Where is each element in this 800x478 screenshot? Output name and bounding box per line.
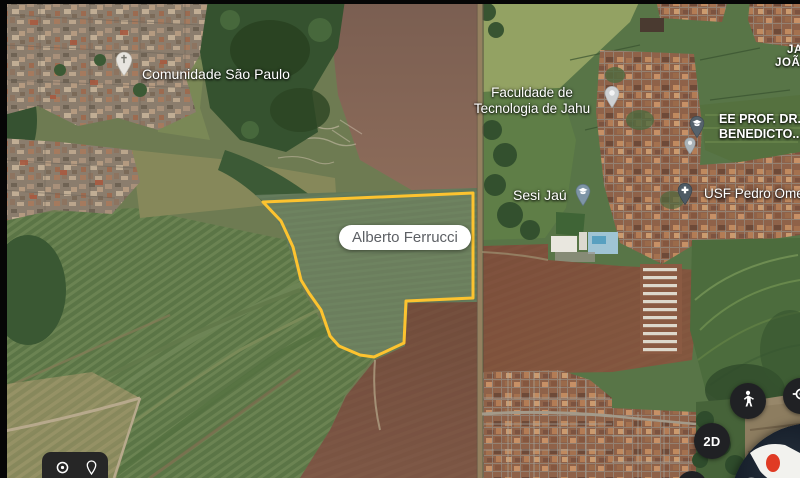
label-ee-line2: BENEDICTO...	[719, 127, 800, 142]
pin-icon[interactable]	[85, 460, 98, 478]
label-comunidade-sao-paulo[interactable]: Comunidade São Paulo	[142, 66, 290, 82]
church-pin-icon[interactable]	[114, 50, 134, 83]
earth-canvas[interactable]: Comunidade São Paulo Faculdade de Tecnol…	[0, 0, 800, 478]
label-faculdade-line2: Tecnologia de Jahu	[458, 101, 606, 117]
label-district-line2: JOÃO	[775, 57, 800, 70]
parcel-name-chip[interactable]: Alberto Ferrucci	[339, 225, 471, 250]
window-edge-left	[0, 0, 7, 478]
label-district-joao[interactable]: JA JOÃO	[775, 44, 800, 70]
label-district-line1: JA	[775, 44, 800, 57]
label-sesi-jau[interactable]: Sesi Jaú	[513, 187, 567, 203]
view-mode-2d-button[interactable]: 2D	[694, 423, 730, 459]
pegman-icon	[737, 388, 759, 415]
parcel-boundary[interactable]	[263, 193, 473, 357]
target-icon[interactable]	[55, 460, 70, 478]
bottom-toolbar[interactable]	[42, 452, 108, 478]
pegman-button[interactable]	[730, 383, 766, 419]
label-faculdade[interactable]: Faculdade de Tecnologia de Jahu	[458, 85, 606, 117]
sesi-school-pin-icon[interactable]	[574, 182, 592, 213]
compass-icon	[790, 383, 800, 410]
usf-health-pin-icon[interactable]	[676, 181, 694, 212]
label-faculdade-line1: Faculdade de	[491, 85, 573, 100]
window-edge-top	[0, 0, 800, 4]
label-ee-line1: EE PROF. DR.	[719, 112, 800, 126]
label-usf-pedro[interactable]: USF Pedro Ome...	[704, 186, 800, 201]
label-ee-school[interactable]: EE PROF. DR. BENEDICTO...	[719, 112, 800, 142]
small-pin-icon[interactable]	[683, 136, 697, 161]
